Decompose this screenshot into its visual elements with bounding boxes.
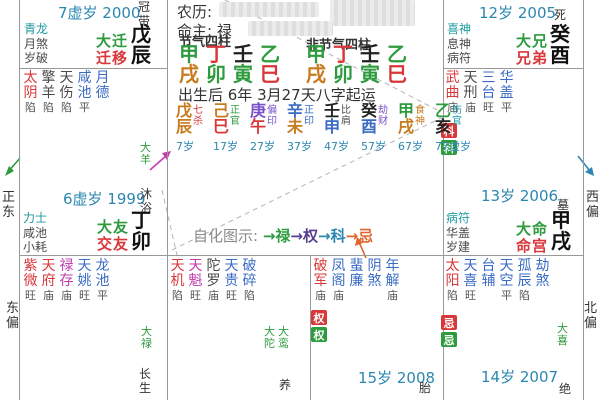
palace-jiaoyou[interactable]: 太阴陷擎羊陷天伤陷咸池平月德 大羊 6虚岁 1999 沐浴 力士 咸池 小耗 大… bbox=[19, 68, 167, 255]
luck-pillars-row: 戊辰七杀7岁己巳正官17岁庚午偏印27岁辛未正印37岁壬申比肩47岁癸酉劫财57… bbox=[176, 103, 472, 154]
god-name: 青龙 bbox=[24, 22, 48, 37]
luck-pillar: 甲戌食神67岁 bbox=[398, 103, 435, 154]
ten-god-label: 正印 bbox=[304, 103, 315, 135]
star-status: 陷 bbox=[43, 101, 54, 114]
palace-year: 13岁 2006 bbox=[481, 185, 558, 206]
luck-ganzhi: 癸酉 bbox=[361, 103, 378, 135]
pillar-column: 乙巳 bbox=[260, 44, 287, 84]
palace-bottom-mid-left[interactable]: 天机陷天魁旺陀罗庙天贵旺破碎陷 大陀大鸾 养 bbox=[167, 255, 310, 400]
redacted-info bbox=[330, 0, 415, 26]
palace-qianyi[interactable]: 7虚岁 2000 冠带 青龙 月煞 岁破 大迁 迁移 戊辰 bbox=[19, 0, 167, 68]
sihua-badges: 忌忌 bbox=[441, 315, 457, 347]
star-column: 天贵旺 bbox=[224, 259, 239, 302]
star-column: 禄存庙 bbox=[59, 259, 74, 302]
boshi-gods: 青龙 月煞 岁破 bbox=[24, 22, 48, 66]
star-name: 三台 bbox=[481, 71, 496, 101]
star-column: 台辅 bbox=[481, 259, 496, 302]
star-column: 孤辰陷 bbox=[517, 259, 532, 302]
luck-ganzhi: 庚午 bbox=[250, 103, 267, 135]
luck-branch: 亥 bbox=[435, 119, 452, 135]
pillar-stem: 甲 bbox=[179, 44, 206, 64]
pillar-column: 丁卯 bbox=[333, 44, 360, 84]
luck-branch: 申 bbox=[324, 119, 341, 135]
pillar-stem: 甲 bbox=[306, 44, 333, 64]
luck-pillar: 戊辰七杀7岁 bbox=[176, 103, 213, 154]
star-name: 紫微 bbox=[23, 259, 38, 289]
star-column: 擎羊陷 bbox=[41, 71, 56, 114]
star-status: 旺 bbox=[226, 289, 237, 302]
star-status: 庙 bbox=[315, 289, 326, 302]
star-status: 旺 bbox=[465, 289, 476, 302]
pillar-stem: 丁 bbox=[206, 44, 233, 64]
luck-ganzhi-line: 己巳正官 bbox=[213, 103, 250, 135]
star-status: 平 bbox=[79, 101, 90, 114]
zihua-item: →权 bbox=[290, 227, 318, 245]
star-status: 平 bbox=[97, 289, 108, 302]
pillar-branch: 戌 bbox=[179, 64, 206, 84]
star-name: 蜚廉 bbox=[349, 259, 364, 289]
star-column: 三台旺 bbox=[481, 71, 496, 114]
star-name: 天贵 bbox=[224, 259, 239, 289]
jieqi-four-pillars: 甲戌丁卯壬寅乙巳 bbox=[179, 44, 287, 84]
god-name: 喜神 bbox=[447, 22, 471, 37]
star-status: 陷 bbox=[25, 101, 36, 114]
luck-start-age: 67岁 bbox=[398, 135, 435, 154]
zihua-item: →忌 bbox=[346, 227, 374, 245]
life-stage: 养 bbox=[279, 378, 294, 392]
star-column: 华盖平 bbox=[499, 71, 514, 114]
star-status: 陷 bbox=[61, 101, 72, 114]
star-name: 擎羊 bbox=[41, 71, 56, 101]
luck-branch: 辰 bbox=[176, 119, 193, 135]
god-name: 月煞 bbox=[24, 37, 48, 52]
pillar-stem: 壬 bbox=[233, 44, 260, 64]
god-name: 力士 bbox=[23, 211, 47, 226]
luck-branch: 戌 bbox=[398, 119, 415, 135]
star-column: 年解庙 bbox=[385, 259, 400, 302]
luck-start-age: 27岁 bbox=[250, 135, 287, 154]
pillar-branch: 巳 bbox=[387, 64, 414, 84]
luck-pillar: 壬申比肩47岁 bbox=[324, 103, 361, 154]
god-name: 岁建 bbox=[446, 240, 470, 255]
pillar-column: 丁卯 bbox=[206, 44, 233, 84]
palace-year: 6虚岁 1999 bbox=[63, 188, 146, 209]
redacted-lunar-date bbox=[219, 2, 319, 17]
star-name: 天姚 bbox=[77, 259, 92, 289]
star-status: 陷 bbox=[519, 289, 530, 302]
bazi-start-line: 出生后 6年 3月27天八字起运 bbox=[178, 84, 376, 105]
luck-branch: 未 bbox=[287, 119, 304, 135]
god-name: 华盖 bbox=[446, 226, 470, 241]
luck-start-age: 7岁 bbox=[176, 135, 213, 154]
zihua-label: 自化图示: bbox=[193, 227, 258, 245]
star-status: 陷 bbox=[172, 289, 183, 302]
luck-branch: 巳 bbox=[213, 119, 230, 135]
luck-start-age: 57岁 bbox=[361, 135, 398, 154]
palace-ganzhi: 丁卯 bbox=[131, 210, 154, 252]
star-column: 龙池平 bbox=[95, 259, 110, 302]
star-status: 庙 bbox=[208, 289, 219, 302]
star-column: 天府庙 bbox=[41, 259, 56, 302]
decade-flow-star: 大禄 bbox=[141, 326, 154, 350]
star-status: 庙 bbox=[387, 289, 398, 302]
pillar-stem: 乙 bbox=[260, 44, 287, 64]
star-name: 天府 bbox=[41, 259, 56, 289]
star-column: 紫微旺 bbox=[23, 259, 38, 302]
star-row: 太阴陷擎羊陷天伤陷咸池平月德 bbox=[23, 71, 113, 114]
star-row: 破军庙凤阁庙蜚廉阴煞年解庙 bbox=[313, 259, 403, 302]
zihua-sequence: →禄→权→科→忌 bbox=[263, 227, 373, 245]
luck-branch: 酉 bbox=[361, 119, 378, 135]
luck-ganzhi: 己巳 bbox=[213, 103, 230, 135]
decade-flow-star: 大喜 bbox=[557, 323, 570, 347]
luck-start-age: 77虚岁 bbox=[435, 135, 472, 154]
sihua-badges: 权权 bbox=[311, 310, 327, 342]
ten-god-label: 劫财 bbox=[378, 103, 389, 135]
pillar-stem: 乙 bbox=[387, 44, 414, 64]
star-status: 平 bbox=[501, 289, 512, 302]
luck-ganzhi-line: 甲戌食神 bbox=[398, 103, 435, 135]
star-name: 太阴 bbox=[23, 71, 38, 101]
star-column: 天魁旺 bbox=[188, 259, 203, 302]
luck-ganzhi-line: 戊辰七杀 bbox=[176, 103, 213, 135]
palace-xiongdi[interactable]: 12岁 2005 死 喜神 息神 病符 大兄 兄弟 癸酉 bbox=[443, 0, 583, 68]
life-stage: 胎 bbox=[419, 381, 434, 395]
star-column: 天空平 bbox=[499, 259, 514, 302]
luck-ganzhi-line: 壬申比肩 bbox=[324, 103, 361, 135]
palace-year: 12岁 2005 bbox=[479, 2, 556, 23]
ten-god-label: 正官 bbox=[230, 103, 241, 135]
pillar-branch: 戌 bbox=[306, 64, 333, 84]
green-arrow bbox=[5, 158, 20, 176]
star-column: 咸池平 bbox=[77, 71, 92, 114]
palace-year: 7虚岁 2000 bbox=[58, 2, 141, 23]
luck-branch: 午 bbox=[250, 119, 267, 135]
star-name: 天机 bbox=[170, 259, 185, 289]
star-name: 天伤 bbox=[59, 71, 74, 101]
star-column: 劫煞 bbox=[535, 259, 550, 302]
life-stage: 绝 bbox=[559, 382, 574, 396]
luck-ganzhi: 壬申 bbox=[324, 103, 341, 135]
star-name: 凤阁 bbox=[331, 259, 346, 289]
luck-start-age: 17岁 bbox=[213, 135, 250, 154]
star-status: 旺 bbox=[483, 101, 494, 114]
palace-ganzhi: 癸酉 bbox=[550, 24, 573, 66]
palace-year: 14岁 2007 bbox=[481, 366, 558, 387]
zihua-item: →科 bbox=[318, 227, 346, 245]
star-column: 太阴陷 bbox=[23, 71, 38, 114]
ten-god-label: 比肩 bbox=[341, 103, 352, 135]
god-name: 小耗 bbox=[23, 240, 47, 255]
star-column: 破碎陷 bbox=[242, 259, 257, 302]
pillar-column: 甲戌 bbox=[306, 44, 333, 84]
luck-start-age: 37岁 bbox=[287, 135, 324, 154]
star-name: 禄存 bbox=[59, 259, 74, 289]
palace-ganzhi: 戊辰 bbox=[131, 24, 154, 66]
pillar-branch: 寅 bbox=[233, 64, 260, 84]
star-status: 庙 bbox=[61, 289, 72, 302]
luck-pillar: 庚午偏印27岁 bbox=[250, 103, 287, 154]
star-column: 阴煞 bbox=[367, 259, 382, 302]
star-column: 蜚廉 bbox=[349, 259, 364, 302]
god-name: 咸池 bbox=[23, 226, 47, 241]
ten-god-label: 伤官 bbox=[452, 103, 463, 135]
ten-god-label: 食神 bbox=[415, 103, 426, 135]
palace-name: 命宫 bbox=[516, 235, 548, 256]
boshi-gods: 喜神 息神 病符 bbox=[447, 22, 471, 66]
star-column: 天伤陷 bbox=[59, 71, 74, 114]
star-name: 破碎 bbox=[242, 259, 257, 289]
star-column: 天机陷 bbox=[170, 259, 185, 302]
star-name: 台辅 bbox=[481, 259, 496, 289]
star-status: 陷 bbox=[244, 289, 255, 302]
star-name: 太阳 bbox=[445, 259, 460, 289]
star-column: 太阳陷 bbox=[445, 259, 460, 302]
star-name: 阴煞 bbox=[367, 259, 382, 289]
decade-flow-star: 大陀 bbox=[264, 326, 277, 350]
zihua-item: →禄 bbox=[263, 227, 291, 245]
pillar-stem: 壬 bbox=[360, 44, 387, 64]
god-name: 病符 bbox=[446, 211, 470, 226]
luck-pillar: 己巳正官17岁 bbox=[213, 103, 250, 154]
god-name: 岁破 bbox=[24, 51, 48, 66]
star-name: 天喜 bbox=[463, 259, 478, 289]
zihua-legend: 自化图示: →禄→权→科→忌 bbox=[193, 225, 373, 246]
decade-flow-star: 大鸾 bbox=[278, 326, 291, 350]
star-column: 陀罗庙 bbox=[206, 259, 221, 302]
star-name: 天魁 bbox=[188, 259, 203, 289]
sihua-badge: 忌 bbox=[441, 315, 457, 330]
star-name: 年解 bbox=[385, 259, 400, 289]
fei-jieqi-four-pillars: 甲戌丁卯壬寅乙巳 bbox=[306, 44, 414, 84]
star-name: 龙池 bbox=[95, 259, 110, 289]
star-status: 陷 bbox=[447, 289, 458, 302]
star-row: 天机陷天魁旺陀罗庙天贵旺破碎陷 bbox=[170, 259, 260, 302]
decade-flow-stars: 大陀大鸾 bbox=[264, 326, 291, 350]
palace-bottom-right[interactable]: 太阳陷天喜旺台辅天空平孤辰陷劫煞 忌忌 大喜 14岁 2007 绝 bbox=[443, 255, 583, 400]
star-name: 天刑 bbox=[463, 71, 478, 101]
star-status: 庙 bbox=[333, 289, 344, 302]
star-column: 破军庙 bbox=[313, 259, 328, 302]
decade-flow-star: 大羊 bbox=[140, 142, 153, 166]
star-row: 太阳陷天喜旺台辅天空平孤辰陷劫煞 bbox=[445, 259, 553, 302]
palace-bottom-left[interactable]: 紫微旺天府庙禄存庙天姚旺龙池平 大禄 长生 bbox=[19, 255, 167, 400]
palace-bottom-mid-right[interactable]: 破军庙凤阁庙蜚廉阴煞年解庙 权权 15岁 2008 胎 bbox=[310, 255, 443, 400]
star-status: 旺 bbox=[190, 289, 201, 302]
palace-minggong[interactable]: 武曲庙天刑庙三台旺华盖平 科科 13岁 2006 墓 病符 华盖 岁建 大命 命… bbox=[443, 68, 583, 255]
luck-start-age: 47岁 bbox=[324, 135, 361, 154]
star-status: 平 bbox=[501, 101, 512, 114]
star-status: 庙 bbox=[43, 289, 54, 302]
grid-border bbox=[583, 0, 584, 400]
ten-god-label: 七杀 bbox=[193, 103, 204, 135]
star-column: 天喜旺 bbox=[463, 259, 478, 302]
god-name: 病符 bbox=[447, 51, 471, 66]
star-column: 月德 bbox=[95, 71, 110, 114]
ten-god-label: 偏印 bbox=[267, 103, 278, 135]
luck-ganzhi: 甲戌 bbox=[398, 103, 415, 135]
life-stage: 长生 bbox=[139, 367, 154, 395]
pillar-column: 乙巳 bbox=[387, 44, 414, 84]
pillar-stem: 丁 bbox=[333, 44, 360, 64]
pillar-branch: 卯 bbox=[333, 64, 360, 84]
star-name: 孤辰 bbox=[517, 259, 532, 289]
luck-ganzhi-line: 庚午偏印 bbox=[250, 103, 287, 135]
star-column: 天姚旺 bbox=[77, 259, 92, 302]
star-name: 月德 bbox=[95, 71, 110, 101]
star-name: 破军 bbox=[313, 259, 328, 289]
star-column: 凤阁庙 bbox=[331, 259, 346, 302]
star-name: 劫煞 bbox=[535, 259, 550, 289]
boshi-gods: 力士 咸池 小耗 bbox=[23, 211, 47, 255]
compass-label-east: 正东 bbox=[2, 190, 17, 220]
luck-ganzhi: 辛未 bbox=[287, 103, 304, 135]
sihua-badge: 权 bbox=[311, 310, 327, 325]
luck-ganzhi-line: 辛未正印 bbox=[287, 103, 324, 135]
luck-pillar: 辛未正印37岁 bbox=[287, 103, 324, 154]
life-stage: 死 bbox=[554, 8, 569, 22]
luck-pillar: 乙亥伤官77虚岁 bbox=[435, 103, 472, 154]
star-name: 华盖 bbox=[499, 71, 514, 101]
pillar-column: 壬寅 bbox=[233, 44, 260, 84]
star-status: 旺 bbox=[25, 289, 36, 302]
star-name: 咸池 bbox=[77, 71, 92, 101]
luck-ganzhi-line: 癸酉劫财 bbox=[361, 103, 398, 135]
palace-ganzhi: 甲戌 bbox=[551, 210, 574, 252]
ziwei-doushu-chart: 正东 东偏 西偏 北偏 7虚岁 2000 冠带 青龙 月煞 岁破 大迁 迁移 戊… bbox=[0, 0, 600, 400]
lunar-date-label: 农历: bbox=[177, 1, 212, 22]
center-info-panel: 农历: 命主: 禄 节气四柱 非节气四柱 甲戌丁卯壬寅乙巳 甲戌丁卯壬寅乙巳 出… bbox=[167, 0, 443, 255]
star-name: 陀罗 bbox=[206, 259, 221, 289]
luck-ganzhi: 乙亥 bbox=[435, 103, 452, 135]
sihua-badge: 权 bbox=[311, 327, 327, 342]
palace-name: 迁移 bbox=[96, 47, 128, 68]
pillar-branch: 卯 bbox=[206, 64, 233, 84]
palace-name: 兄弟 bbox=[516, 47, 548, 68]
compass-label-west-by: 西偏 bbox=[586, 190, 600, 220]
pillar-column: 甲戌 bbox=[179, 44, 206, 84]
pillar-branch: 巳 bbox=[260, 64, 287, 84]
star-name: 武曲 bbox=[445, 71, 460, 101]
luck-pillar: 癸酉劫财57岁 bbox=[361, 103, 398, 154]
compass-label-north-by: 北偏 bbox=[584, 301, 599, 331]
star-status: 旺 bbox=[79, 289, 90, 302]
star-row: 紫微旺天府庙禄存庙天姚旺龙池平 bbox=[23, 259, 113, 302]
luck-ganzhi: 戊辰 bbox=[176, 103, 193, 135]
god-name: 息神 bbox=[447, 37, 471, 52]
boshi-gods: 病符 华盖 岁建 bbox=[446, 211, 470, 255]
pillar-column: 壬寅 bbox=[360, 44, 387, 84]
pillar-branch: 寅 bbox=[360, 64, 387, 84]
palace-name: 交友 bbox=[97, 233, 129, 254]
luck-ganzhi-line: 乙亥伤官 bbox=[435, 103, 472, 135]
star-name: 天空 bbox=[499, 259, 514, 289]
sihua-badge: 忌 bbox=[441, 332, 457, 347]
